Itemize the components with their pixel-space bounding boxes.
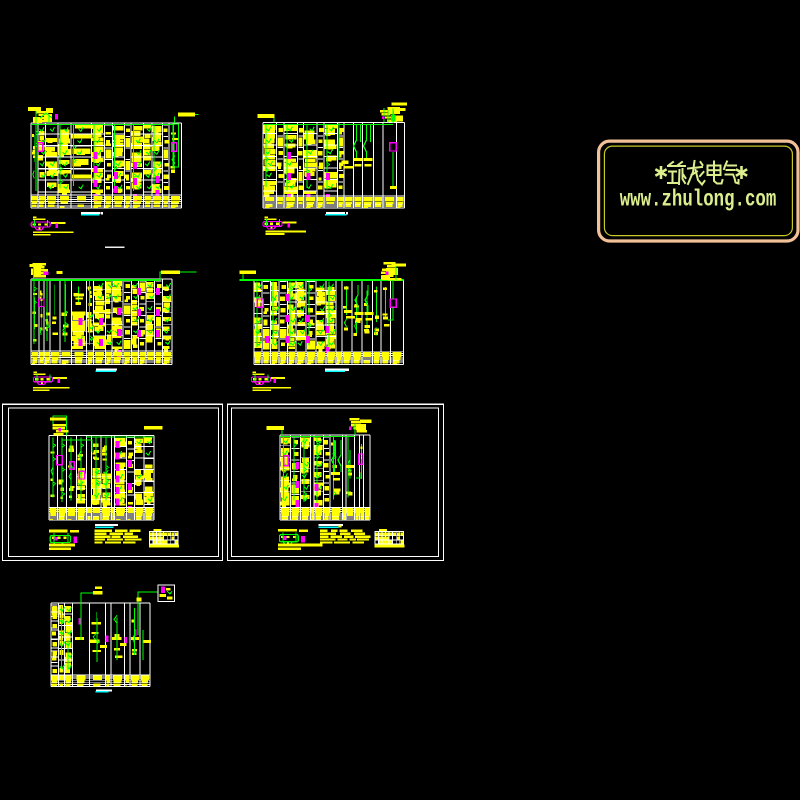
svg-text:www.zhulong.com: www.zhulong.com xyxy=(620,187,777,213)
